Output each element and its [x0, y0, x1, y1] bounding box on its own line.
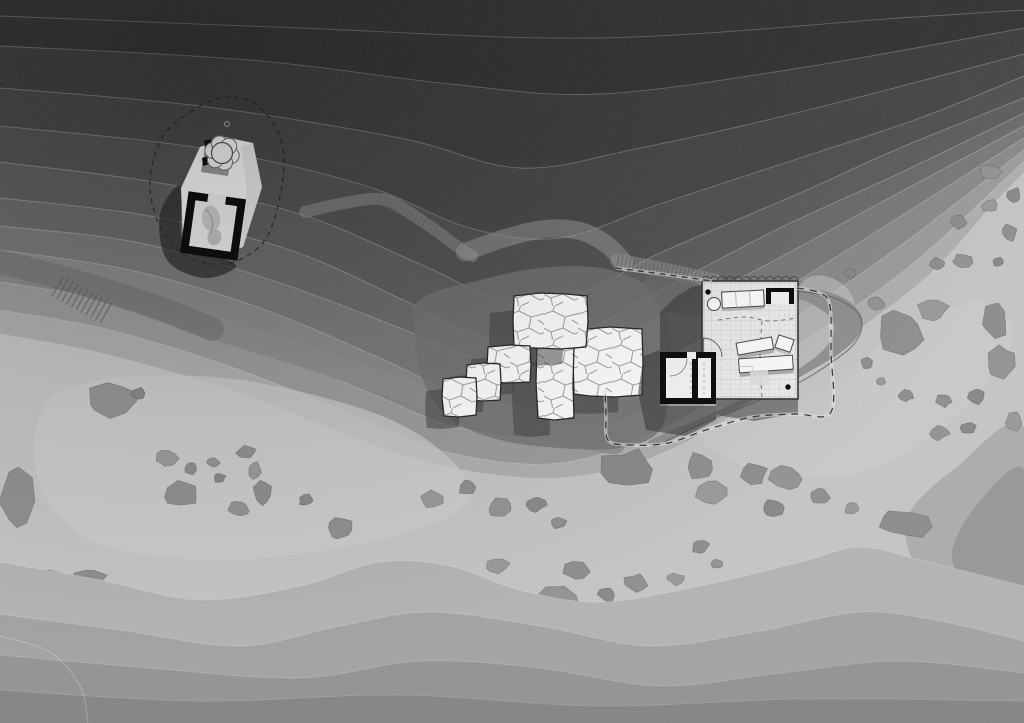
site-plan-page	[0, 0, 1024, 723]
site-plan-canvas	[0, 0, 1024, 723]
grain-dark-overlay	[0, 0, 1024, 723]
